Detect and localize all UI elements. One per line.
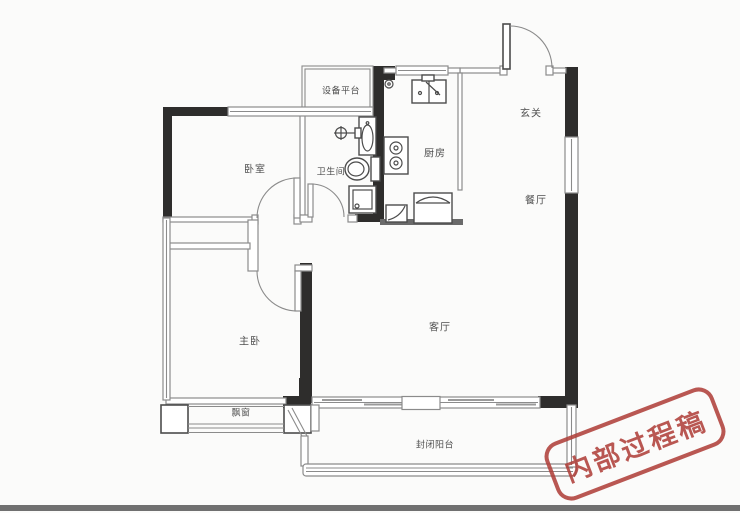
room-label-master-bedroom: 主卧 [239,333,261,348]
room-label-bay-window: 飘窗 [231,406,250,419]
toilet-icon [345,157,380,181]
photo-edge-bar [0,505,740,511]
gas-meter-icon [385,80,393,88]
room-label-balcony: 封闭阳台 [416,438,454,451]
shower-head-icon [334,126,361,140]
sliding-window [312,397,540,410]
refrigerator-icon [414,193,452,223]
room-label-entry: 玄关 [520,105,542,120]
floorplan-image: 卧室 卫生间 设备平台 厨房 玄关 餐厅 客厅 主卧 飘窗 封闭阳台 内部过程稿 [0,0,740,513]
window-left-master [163,218,170,400]
window-kitchen-top [396,66,448,75]
room-label-bathroom: 卫生间 [317,165,346,178]
gas-stove-icon [384,137,408,174]
room-label-dining: 餐厅 [525,192,547,207]
window-dining-right [565,137,578,193]
room-label-kitchen: 厨房 [424,145,446,160]
master-bedroom-door [257,271,301,311]
entry-door [503,24,552,69]
room-label-equipment-platform: 设备平台 [322,84,360,97]
shower-tray-icon [349,186,376,213]
kitchen-corner-cabinet-icon [386,205,407,222]
room-label-bedroom: 卧室 [244,161,266,176]
kitchen-sink-icon [412,75,446,103]
bathroom-door [308,184,344,217]
room-label-living: 客厅 [429,319,451,334]
bedroom-door [257,178,300,218]
window-top-bedroom [228,107,373,116]
